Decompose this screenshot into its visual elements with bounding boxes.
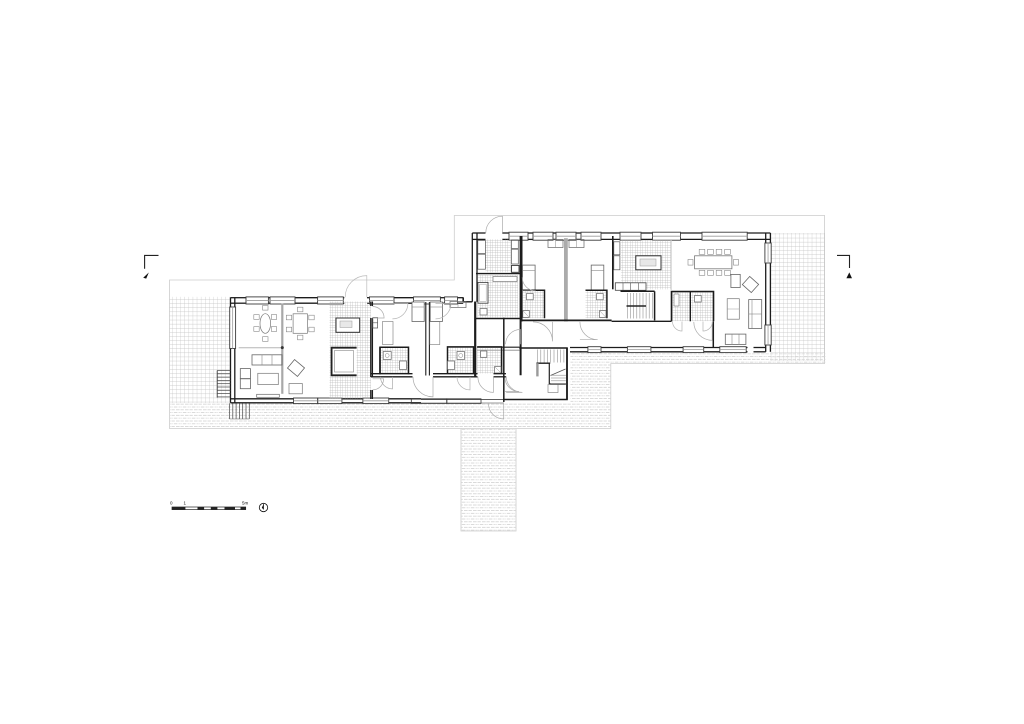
svg-text:5m: 5m [242, 501, 249, 506]
